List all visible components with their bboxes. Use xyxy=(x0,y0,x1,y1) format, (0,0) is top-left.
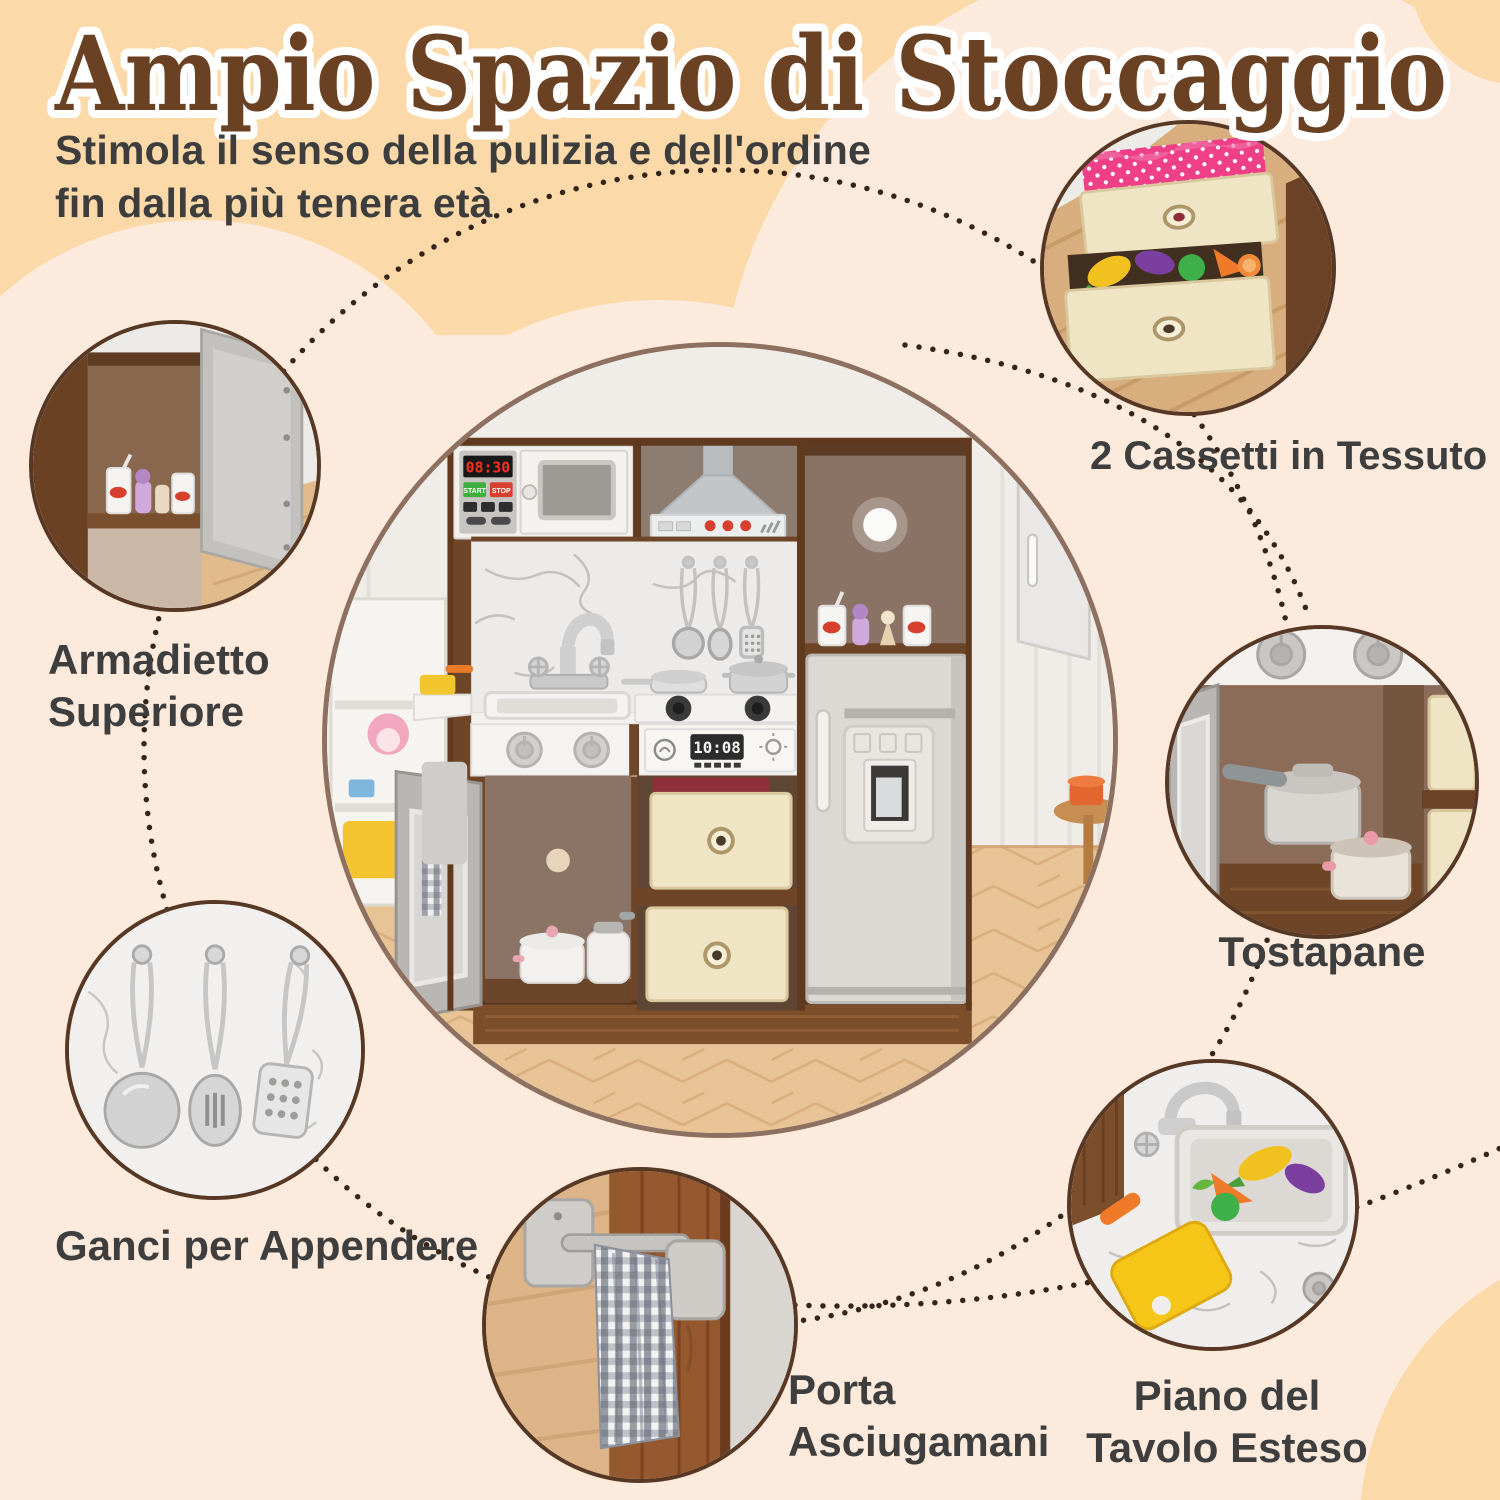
kitchen-illustration: 08:30 START STOP xyxy=(327,347,1113,1133)
central-photo-circle: 08:30 START STOP xyxy=(322,342,1118,1138)
callout-circle-fabric-drawers xyxy=(1040,120,1336,416)
door-handle xyxy=(1028,535,1037,586)
sink xyxy=(485,693,629,719)
fabric-bin-bottom xyxy=(647,908,787,1001)
callout-circle-toaster xyxy=(1165,625,1479,939)
toy-chair xyxy=(422,762,467,865)
fabric-drawers-photo xyxy=(1044,124,1332,412)
label-line: Armadietto xyxy=(48,634,270,686)
microwave: 08:30 START STOP xyxy=(453,446,633,539)
label-line: Porta xyxy=(788,1364,1049,1416)
callout-circle-towel-rack xyxy=(482,1167,798,1483)
callout-label-extended-table: Piano del Tavolo Esteso xyxy=(1037,1370,1417,1474)
callout-circle-hooks xyxy=(65,900,365,1200)
ice-dispenser xyxy=(844,726,933,843)
fridge xyxy=(807,655,967,1003)
toy-block-blue xyxy=(349,779,375,797)
drawer-bottom xyxy=(1063,238,1275,382)
hood-button xyxy=(705,520,716,531)
upper-cabinet-photo xyxy=(33,324,317,608)
towel-rack-photo xyxy=(486,1171,794,1479)
cabinet-shelf xyxy=(88,513,202,528)
label-line: Superiore xyxy=(48,686,270,738)
subtitle: Stimola il senso della pulizia e dell'or… xyxy=(55,124,871,231)
label-line: Tavolo Esteso xyxy=(1037,1422,1417,1474)
toy-green-veg xyxy=(1211,1193,1239,1221)
hood-button xyxy=(722,520,733,531)
fridge-temp-strip xyxy=(844,708,955,718)
table-top-photo xyxy=(1071,1063,1355,1347)
callout-label-upper-cabinet: Armadietto Superiore xyxy=(48,634,270,738)
label-line: Piano del xyxy=(1037,1370,1417,1422)
toy-orange xyxy=(445,665,473,673)
control-panel-row: 10:08 xyxy=(471,724,797,775)
toaster-photo xyxy=(1169,629,1475,935)
callout-label-towel-rack: Porta Asciugamani xyxy=(788,1364,1049,1468)
subtitle-line1: Stimola il senso della pulizia e dell'or… xyxy=(55,124,871,177)
label-line: Asciugamani xyxy=(788,1416,1049,1468)
callout-label-toaster: Tostapane xyxy=(1165,926,1479,978)
hanging-towel-small xyxy=(422,860,442,915)
label-line: Ganci per Appendere xyxy=(55,1220,478,1272)
subtitle-line2: fin dalla più tenera età xyxy=(55,177,871,230)
drawer-top xyxy=(1076,134,1278,262)
microwave-time: 08:30 xyxy=(466,459,511,476)
label-line: Tostapane xyxy=(1165,926,1479,978)
counter-extension xyxy=(414,665,473,864)
storage-cubbies xyxy=(637,776,797,1011)
product-infographic: { "title": "Ampio Spazio di Stoccaggio",… xyxy=(0,0,1500,1500)
towel xyxy=(595,1245,679,1448)
label-line: 2 Cassetti in Tessuto xyxy=(1090,432,1487,482)
svg-text:STOP: STOP xyxy=(492,488,511,495)
callout-circle-upper-cabinet xyxy=(29,320,321,612)
ice-cup xyxy=(876,778,902,817)
hood-button xyxy=(740,520,751,531)
fabric-bin-top xyxy=(651,793,791,888)
microwave-window xyxy=(540,463,613,518)
hooks-photo xyxy=(69,904,361,1196)
range-hood xyxy=(639,444,797,539)
svg-text:START: START xyxy=(463,488,486,495)
microwave-knob xyxy=(523,485,537,499)
oven-clock: 10:08 xyxy=(693,738,741,757)
callout-label-hooks: Ganci per Appendere xyxy=(55,1220,478,1272)
oven-panel: 10:08 xyxy=(645,729,795,771)
fridge-handle xyxy=(817,710,830,811)
callout-label-fabric-drawers: 2 Cassetti in Tessuto xyxy=(1090,432,1487,482)
toy-yellow xyxy=(420,675,456,695)
page-title-text: Ampio Spazio di Stoccaggio xyxy=(54,14,1447,135)
callout-circle-extended-table xyxy=(1067,1059,1359,1351)
